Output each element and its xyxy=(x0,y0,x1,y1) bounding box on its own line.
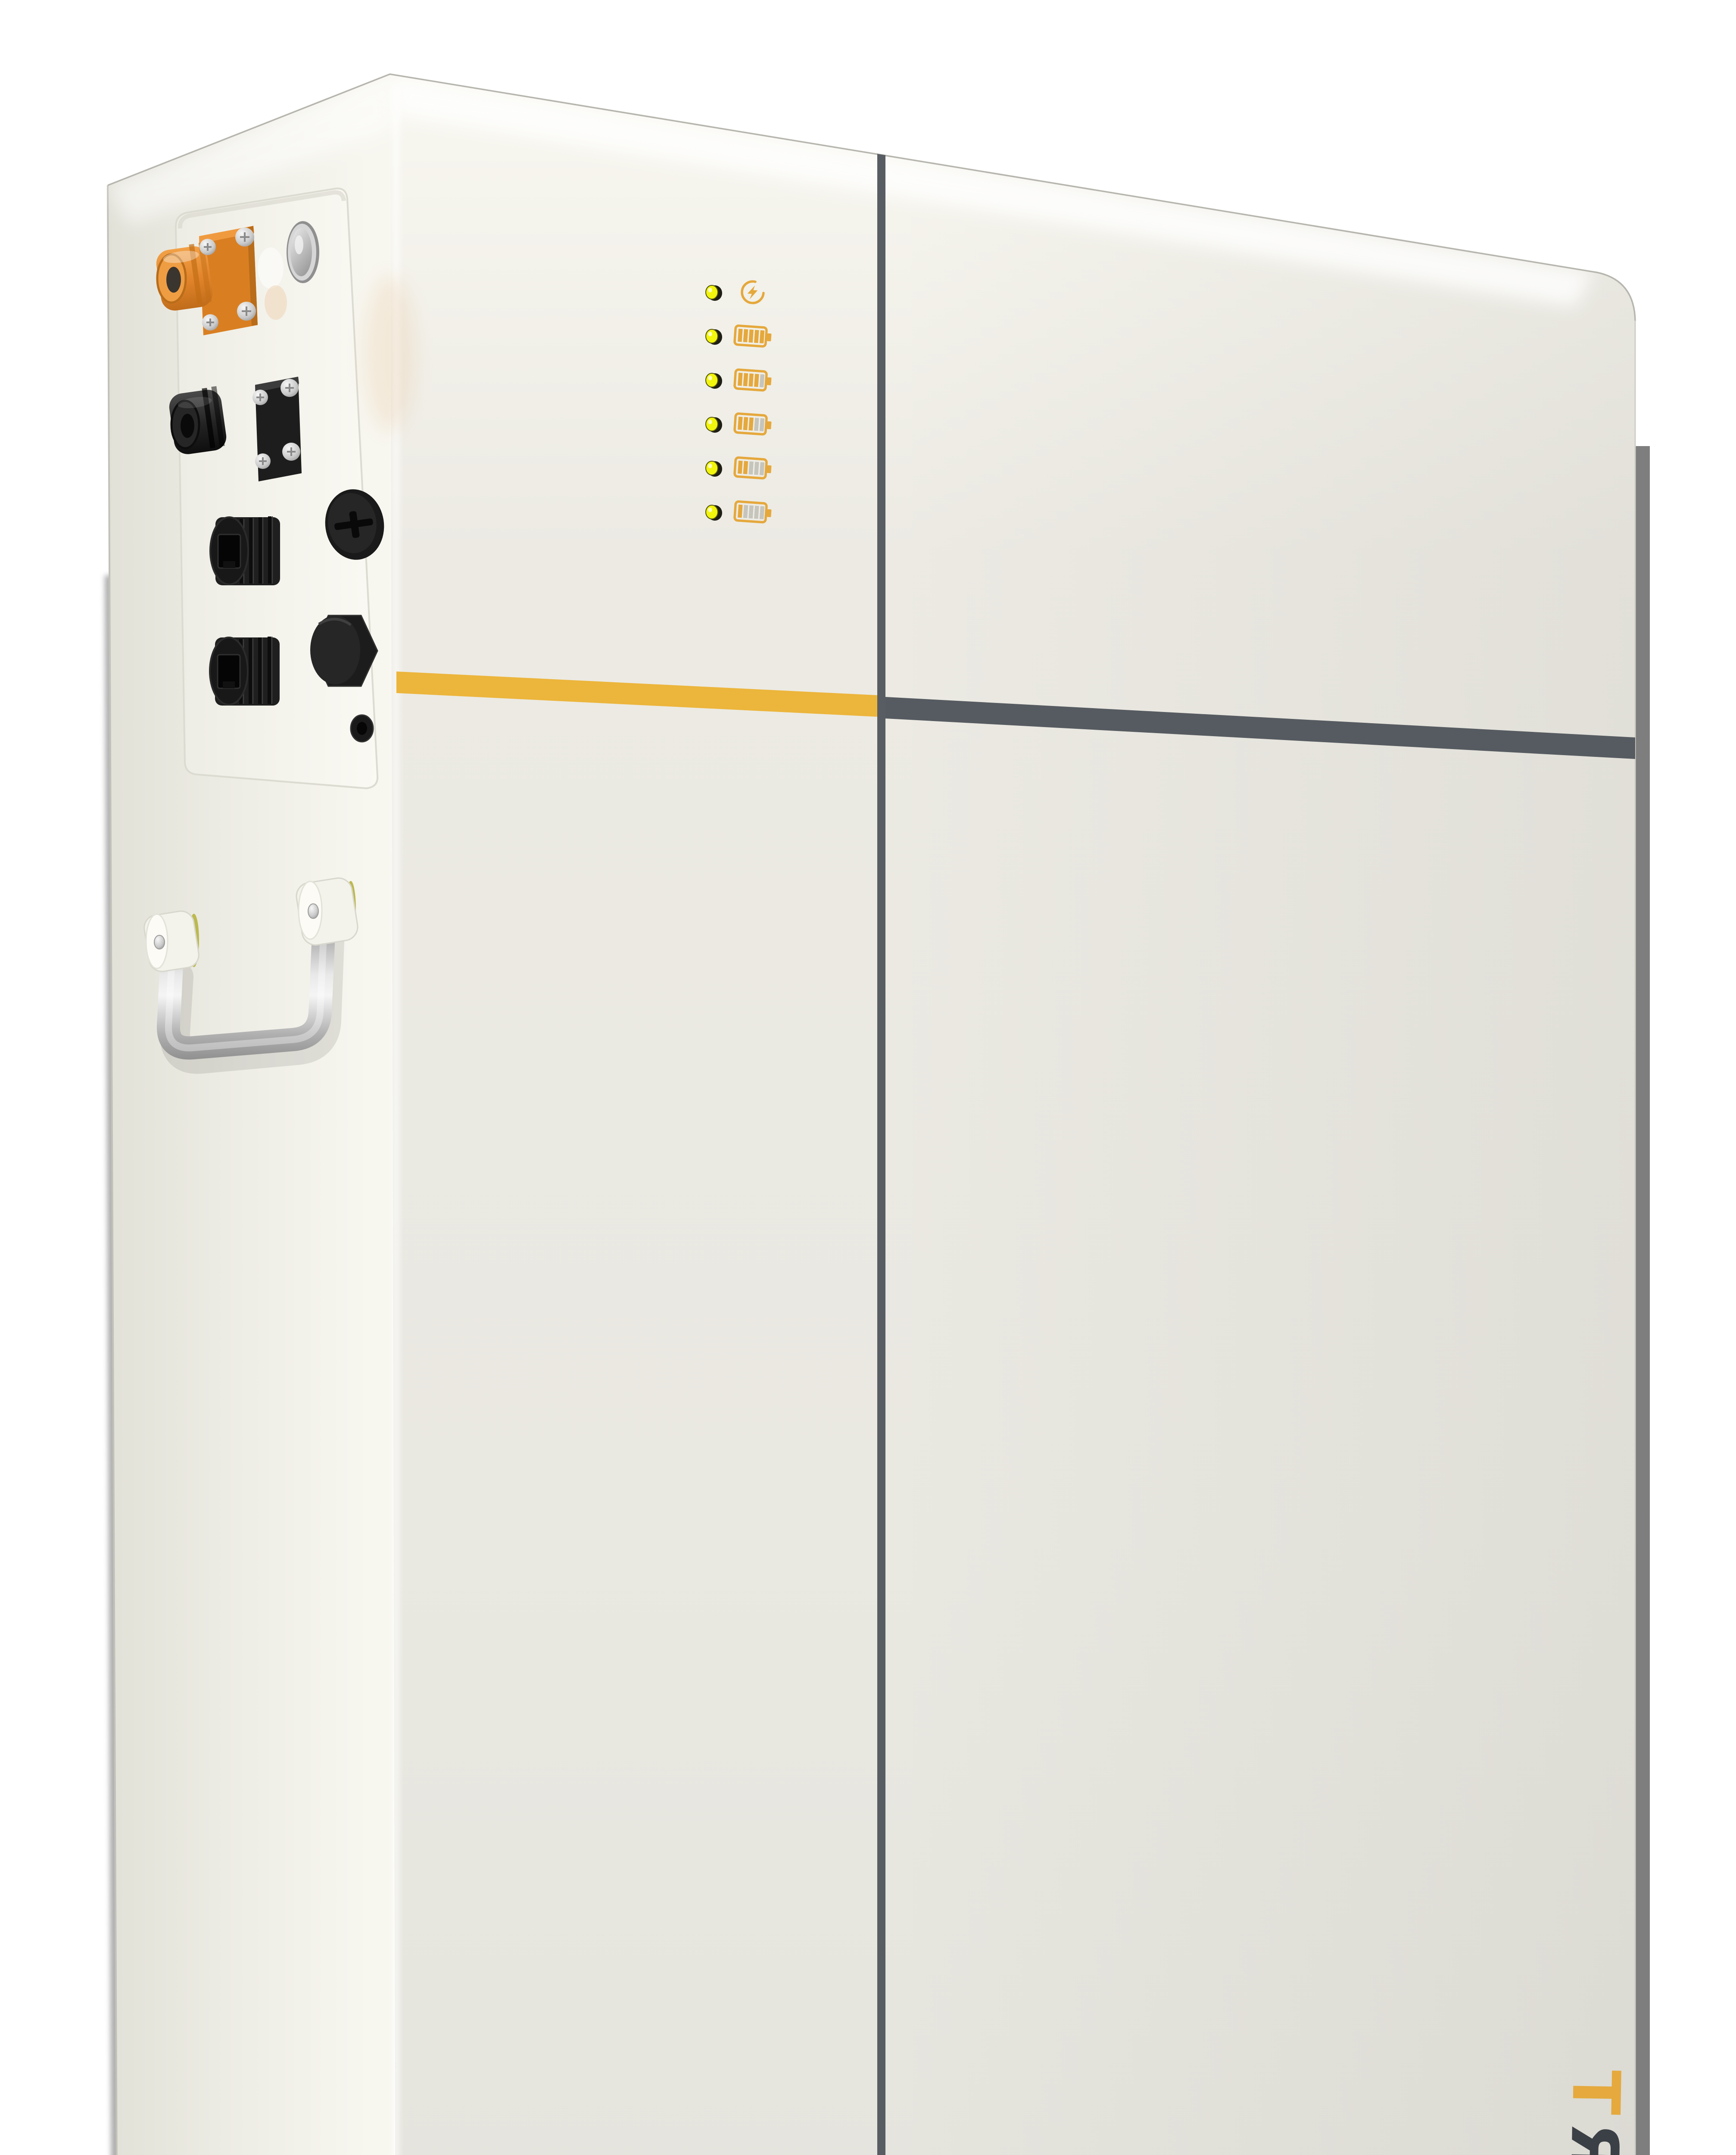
battery-unit-image: T ЯIPLƎ POWER xyxy=(0,0,1736,2155)
logo-triple-first-letter: T xyxy=(1557,2069,1634,2124)
grommet xyxy=(351,715,373,742)
handle-mount-left xyxy=(142,909,200,974)
handle-mount-right xyxy=(294,876,359,947)
mount-screw xyxy=(154,935,165,949)
front-panel-shade xyxy=(885,155,1635,2155)
mount-screw xyxy=(308,904,318,918)
comm-port-bottom xyxy=(210,637,280,706)
comm-port-top xyxy=(210,516,280,585)
power-button xyxy=(287,221,319,283)
panel-seam xyxy=(877,154,885,2155)
logo-triple-rest: ЯIPLƎ xyxy=(1552,2122,1633,2155)
dc-negative-bore xyxy=(181,414,194,438)
product-render: T ЯIPLƎ POWER xyxy=(0,0,1736,2155)
dc-positive-bore xyxy=(166,267,181,293)
backdrop-strip-shadow xyxy=(1635,446,1650,2155)
